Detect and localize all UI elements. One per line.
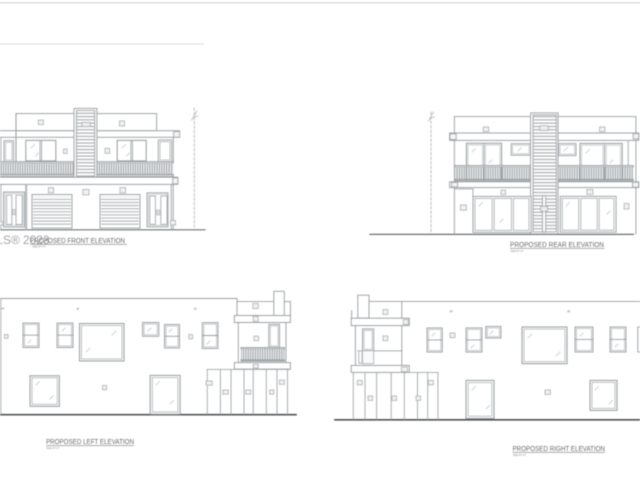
svg-text:SCALE: 1/4" = 1'-0": SCALE: 1/4" = 1'-0" (47, 446, 60, 450)
svg-text:PROPOSED RIGHT ELEVATION: PROPOSED RIGHT ELEVATION (513, 446, 606, 453)
svg-text:SCALE: 1/4" = 1'-0": SCALE: 1/4" = 1'-0" (511, 249, 524, 253)
svg-text:PROPOSED REAR ELEVATION: PROPOSED REAR ELEVATION (510, 242, 604, 249)
svg-text:PROPOSED LEFT ELEVATION: PROPOSED LEFT ELEVATION (46, 439, 134, 446)
svg-text:SCALE: 1/4" = 1'-0": SCALE: 1/4" = 1'-0" (33, 244, 46, 248)
svg-text:SCALE: 1/4" = 1'-0": SCALE: 1/4" = 1'-0" (513, 453, 526, 457)
